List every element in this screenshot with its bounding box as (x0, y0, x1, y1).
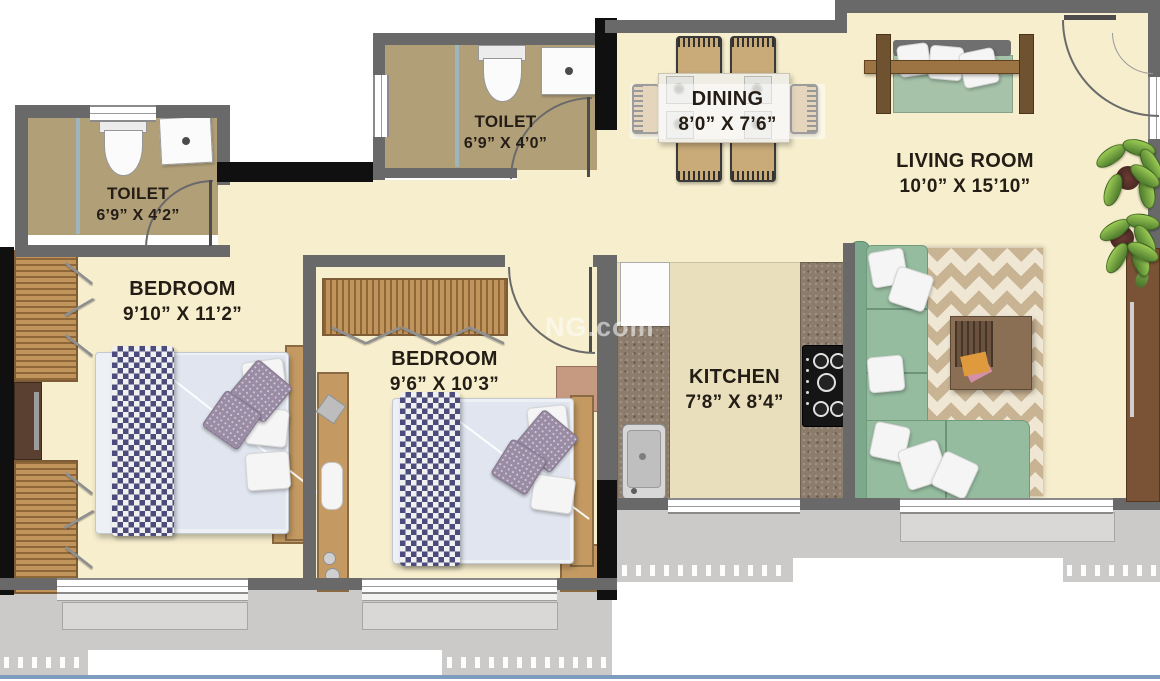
corridor-floor (218, 180, 617, 267)
bed-throw (112, 346, 174, 536)
room-label-bedroom2: BEDROOM 9’6” X 10’3” (342, 346, 547, 397)
footer-line (0, 675, 1160, 679)
railing-dots-3 (622, 565, 790, 576)
basin-drain-icon (565, 67, 573, 75)
sink-icon (622, 424, 666, 500)
dresser-item (323, 552, 336, 565)
bed-throw (400, 392, 460, 566)
room-name: DINING (630, 86, 825, 112)
wardrobe (322, 278, 508, 336)
railing-dots-2 (447, 657, 607, 668)
bed-pillow (530, 473, 577, 514)
wall (597, 267, 617, 480)
window (373, 75, 389, 137)
washbasin-icon (159, 116, 213, 166)
wall (373, 33, 605, 45)
room-name: BEDROOM (80, 276, 285, 302)
room-dims: 10’0” X 15’10” (875, 174, 1055, 199)
wall-black (217, 162, 373, 182)
sink-drain-icon (639, 453, 646, 460)
wall (373, 168, 517, 178)
window (362, 578, 557, 594)
balcony-step-bedroom2 (362, 602, 558, 630)
watermark: NG.com (545, 312, 745, 343)
wall (800, 498, 843, 510)
wall-black (0, 247, 14, 595)
wall (835, 0, 847, 33)
room-label-dining: DINING 8’0” X 7’6” (630, 84, 825, 139)
swing-post (1019, 34, 1034, 114)
chajja-step-living (900, 512, 1115, 542)
room-label-toilet1: TOILET 6’9” X 4’2” (40, 183, 236, 227)
window (668, 498, 800, 514)
faucet-icon (631, 488, 637, 494)
wall (303, 255, 316, 590)
balcony-step-bedroom1 (62, 602, 248, 630)
room-dims: 7’8” X 8’4” (652, 390, 817, 415)
window (90, 105, 156, 122)
room-name: TOILET (40, 183, 236, 205)
dresser-cylinder (321, 462, 343, 510)
wall (15, 105, 28, 247)
main-door-leaf (1064, 15, 1116, 20)
wall (835, 0, 1160, 13)
hob-knob-icon (806, 358, 809, 361)
wall (605, 20, 847, 33)
tv-icon (34, 392, 39, 450)
wall (617, 498, 668, 510)
window (57, 578, 248, 594)
swing-post (876, 34, 891, 114)
window (900, 498, 1113, 514)
tv-icon (1130, 302, 1134, 417)
wardrobe (14, 250, 78, 382)
bed-pillow (245, 451, 292, 492)
room-name: KITCHEN (652, 364, 817, 390)
wall (843, 243, 855, 510)
room-dims: 6’9” X 4’2” (40, 205, 236, 226)
sofa-pillow (866, 354, 905, 393)
room-label-living: LIVING ROOM 10’0” X 15’10” (875, 148, 1055, 199)
room-label-toilet2: TOILET 6’9” X 4’0” (398, 111, 613, 155)
room-dims: 9’10” X 11’2” (80, 302, 285, 327)
room-label-bedroom1: BEDROOM 9’10” X 11’2” (80, 276, 285, 327)
washbasin-icon (541, 47, 597, 95)
railing-dots-1 (4, 657, 84, 668)
wall (593, 255, 617, 267)
wall (303, 255, 505, 267)
room-name: LIVING ROOM (875, 148, 1055, 174)
room-name: BEDROOM (342, 346, 547, 372)
room-dims: 9’6” X 10’3” (342, 372, 547, 397)
room-name: TOILET (398, 111, 613, 133)
room-label-kitchen: KITCHEN 7’8” X 8’4” (652, 364, 817, 415)
room-dims: 8’0” X 7’6” (630, 112, 825, 137)
room-dims: 6’9” X 4’0” (398, 133, 613, 154)
railing-dots-4 (1067, 565, 1157, 576)
burner-icon (817, 373, 836, 392)
floor-plan: TOILET 6’9” X 4’2” TOILET 6’9” X 4’0” DI… (0, 0, 1160, 681)
basin-drain-icon (182, 136, 190, 144)
